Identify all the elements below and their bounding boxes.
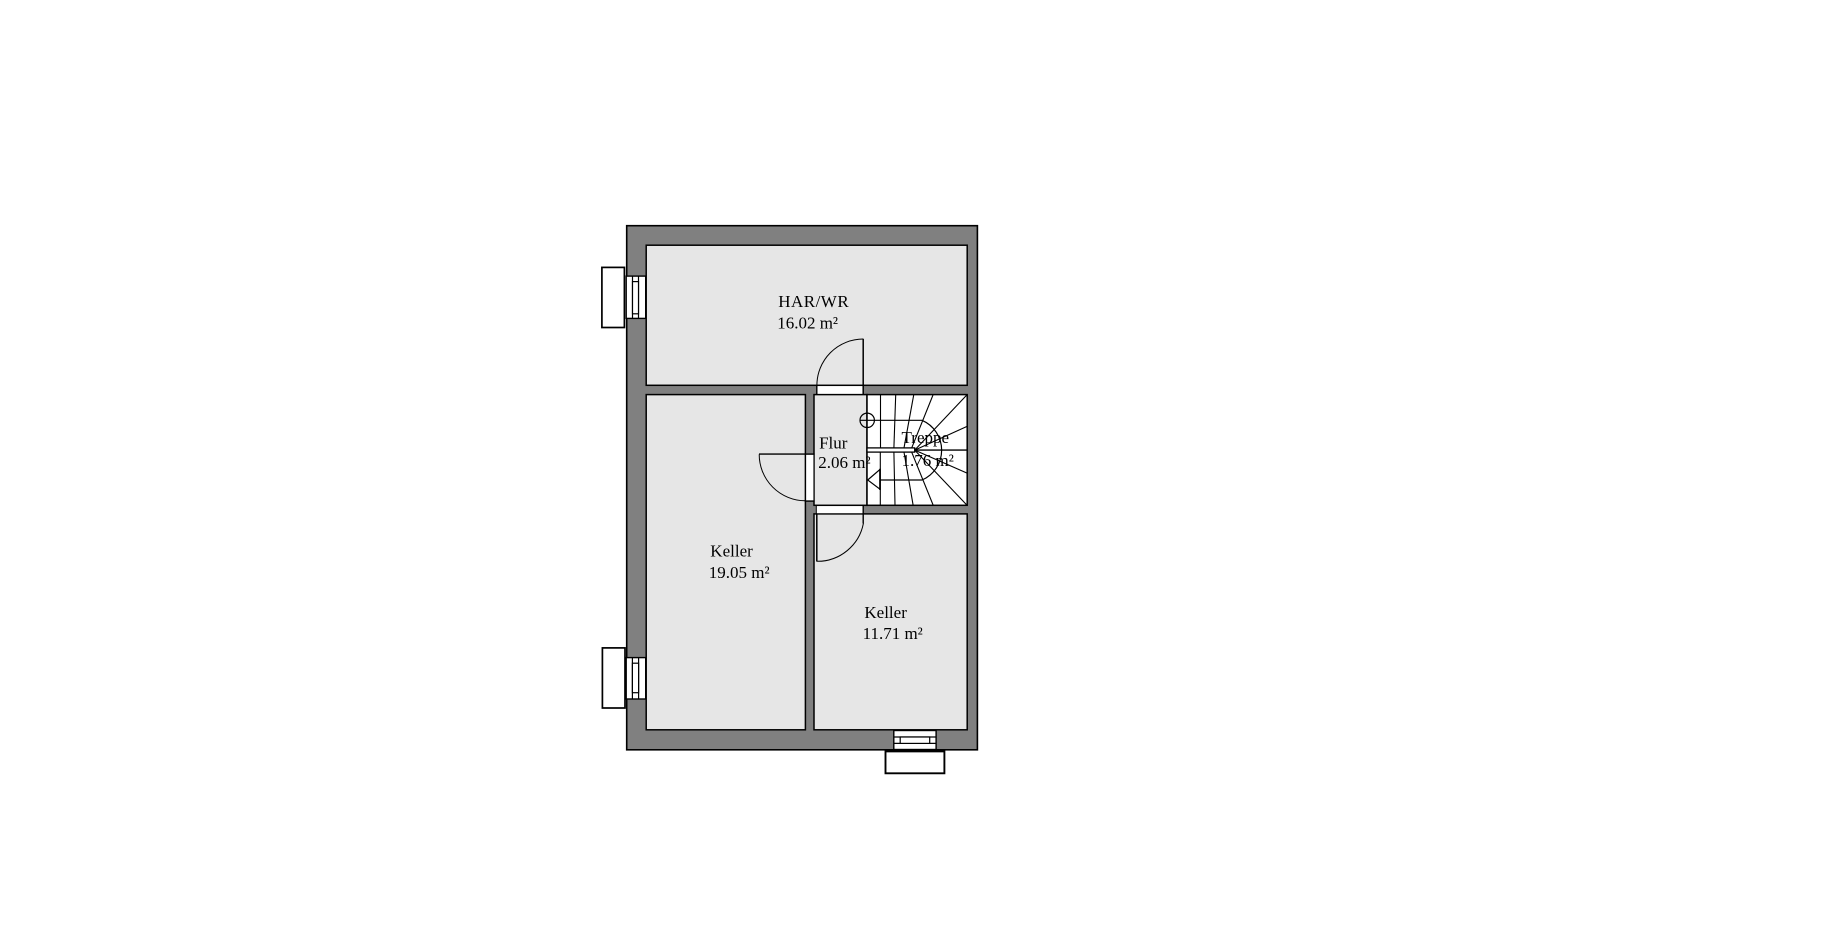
svg-text:HAR/WR: HAR/WR [778, 292, 849, 311]
svg-text:1.76 m²: 1.76 m² [902, 451, 954, 470]
svg-text:Flur: Flur [819, 433, 848, 452]
svg-text:Treppe: Treppe [902, 428, 950, 447]
svg-text:Keller: Keller [864, 603, 907, 622]
svg-text:16.02 m²: 16.02 m² [777, 314, 838, 333]
svg-text:11.71 m²: 11.71 m² [863, 624, 923, 643]
svg-text:2.06 m²: 2.06 m² [818, 453, 870, 472]
svg-text:Keller: Keller [710, 542, 753, 561]
svg-text:19.05 m²: 19.05 m² [709, 563, 770, 582]
